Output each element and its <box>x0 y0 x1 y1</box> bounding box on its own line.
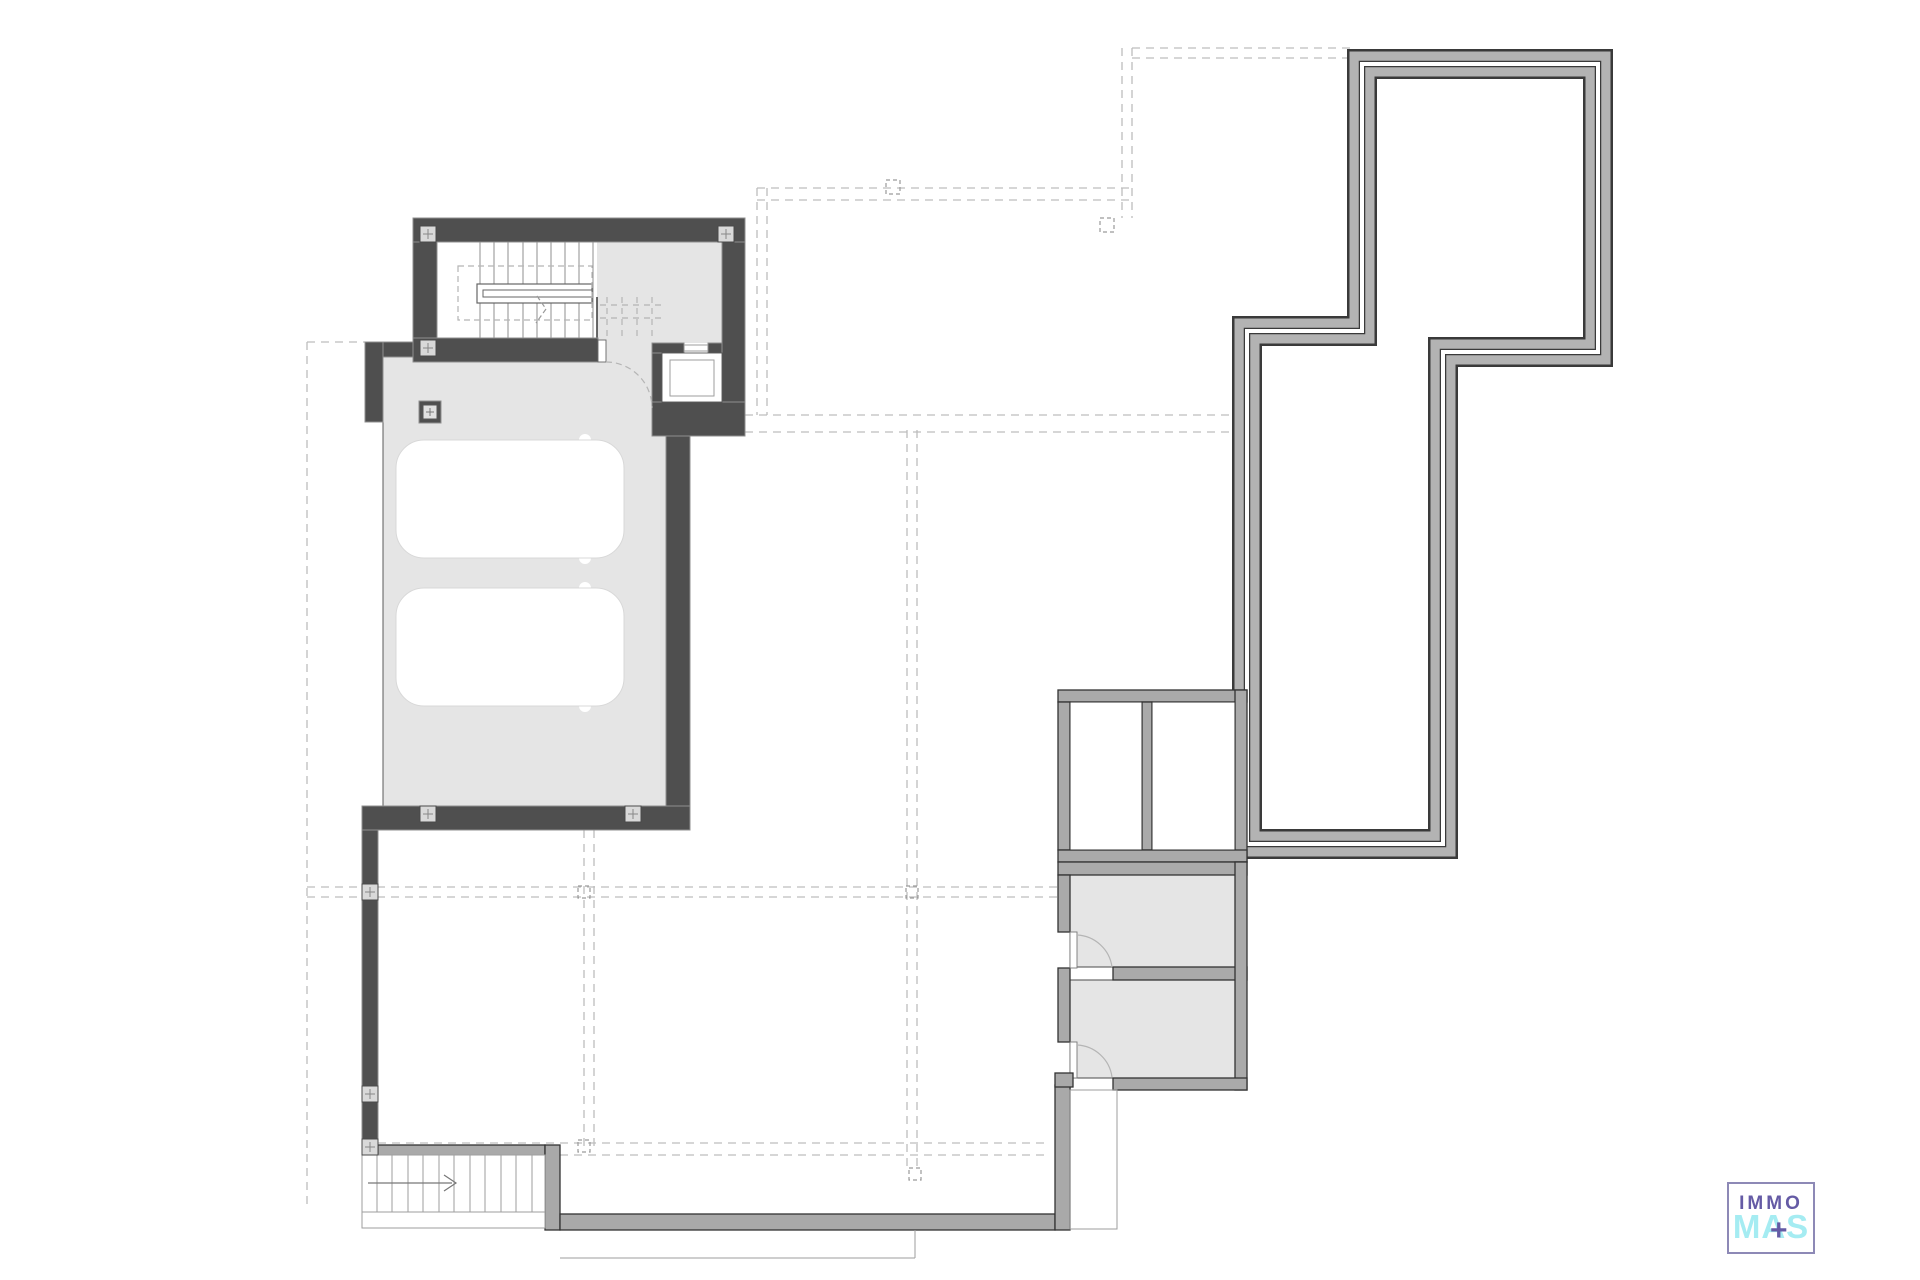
grid-marker <box>906 886 918 898</box>
column-marker <box>625 806 641 822</box>
car-1 <box>396 434 624 564</box>
thin-lines <box>560 1090 1117 1258</box>
column-marker <box>420 806 436 822</box>
storage-divider-wall <box>1113 967 1247 980</box>
garage-door-leaf <box>598 340 606 362</box>
bottom-wall-main <box>560 1214 1055 1230</box>
right-lower-wall-corner <box>1055 1073 1073 1087</box>
garage-column <box>419 401 441 423</box>
storage-left-wall-a <box>1058 875 1070 932</box>
exterior-stairs <box>362 1155 545 1228</box>
lightwell-bottom-wall <box>1058 850 1247 862</box>
floor-plan <box>0 0 1920 1280</box>
lightwell-room-right <box>1152 702 1235 850</box>
column-marker <box>362 1139 378 1155</box>
stairwell-top-wall <box>413 218 745 242</box>
grid-marker <box>886 180 900 194</box>
stairwell-bottom-wall <box>413 338 598 362</box>
grid-marker <box>909 1168 921 1180</box>
elevator-door-lines <box>684 345 708 351</box>
storage-room-upper-floor <box>1070 875 1235 967</box>
column-marker <box>362 1086 378 1102</box>
lightwell-top-wall <box>1058 690 1247 702</box>
storage-block <box>1058 862 1247 1090</box>
right-lower-wall <box>1055 1085 1070 1230</box>
lightwell-right-wall <box>1235 690 1247 862</box>
car-2 <box>396 582 624 712</box>
storage-right-wall <box>1235 862 1247 1090</box>
elevator-top-wall-a <box>652 343 684 353</box>
storage-left-wall-b <box>1058 968 1070 1042</box>
door-leaf-upper <box>1070 932 1077 968</box>
storage-bottom-wall <box>1113 1078 1247 1090</box>
lightwell-block <box>1058 690 1247 862</box>
logo-plus-icon: + <box>1770 1216 1788 1246</box>
garage-entry-wall-v <box>365 342 383 422</box>
elevator-bottom-band <box>652 402 745 436</box>
bottom-wall-step <box>545 1145 560 1230</box>
lightwell-divider-wall <box>1142 702 1152 850</box>
lightwell-left-wall <box>1058 702 1070 850</box>
storage-room-lower-floor <box>1070 980 1235 1078</box>
garage-right-wall <box>666 436 690 806</box>
column-marker <box>420 226 436 242</box>
column-marker <box>420 340 436 356</box>
lower-step-outline <box>1070 1090 1117 1229</box>
storage-top-wall <box>1058 862 1247 875</box>
floor-plan-svg <box>0 0 1920 1280</box>
garage-floor <box>383 357 666 806</box>
column-marker <box>362 884 378 900</box>
garage <box>362 338 690 830</box>
elevator-top-wall-b <box>708 343 722 353</box>
lightwell-room-left <box>1070 702 1142 850</box>
elevator-left-wall <box>652 353 662 402</box>
terrace-outline <box>1247 64 1598 844</box>
grid-marker <box>1100 218 1114 232</box>
column-marker <box>718 226 734 242</box>
